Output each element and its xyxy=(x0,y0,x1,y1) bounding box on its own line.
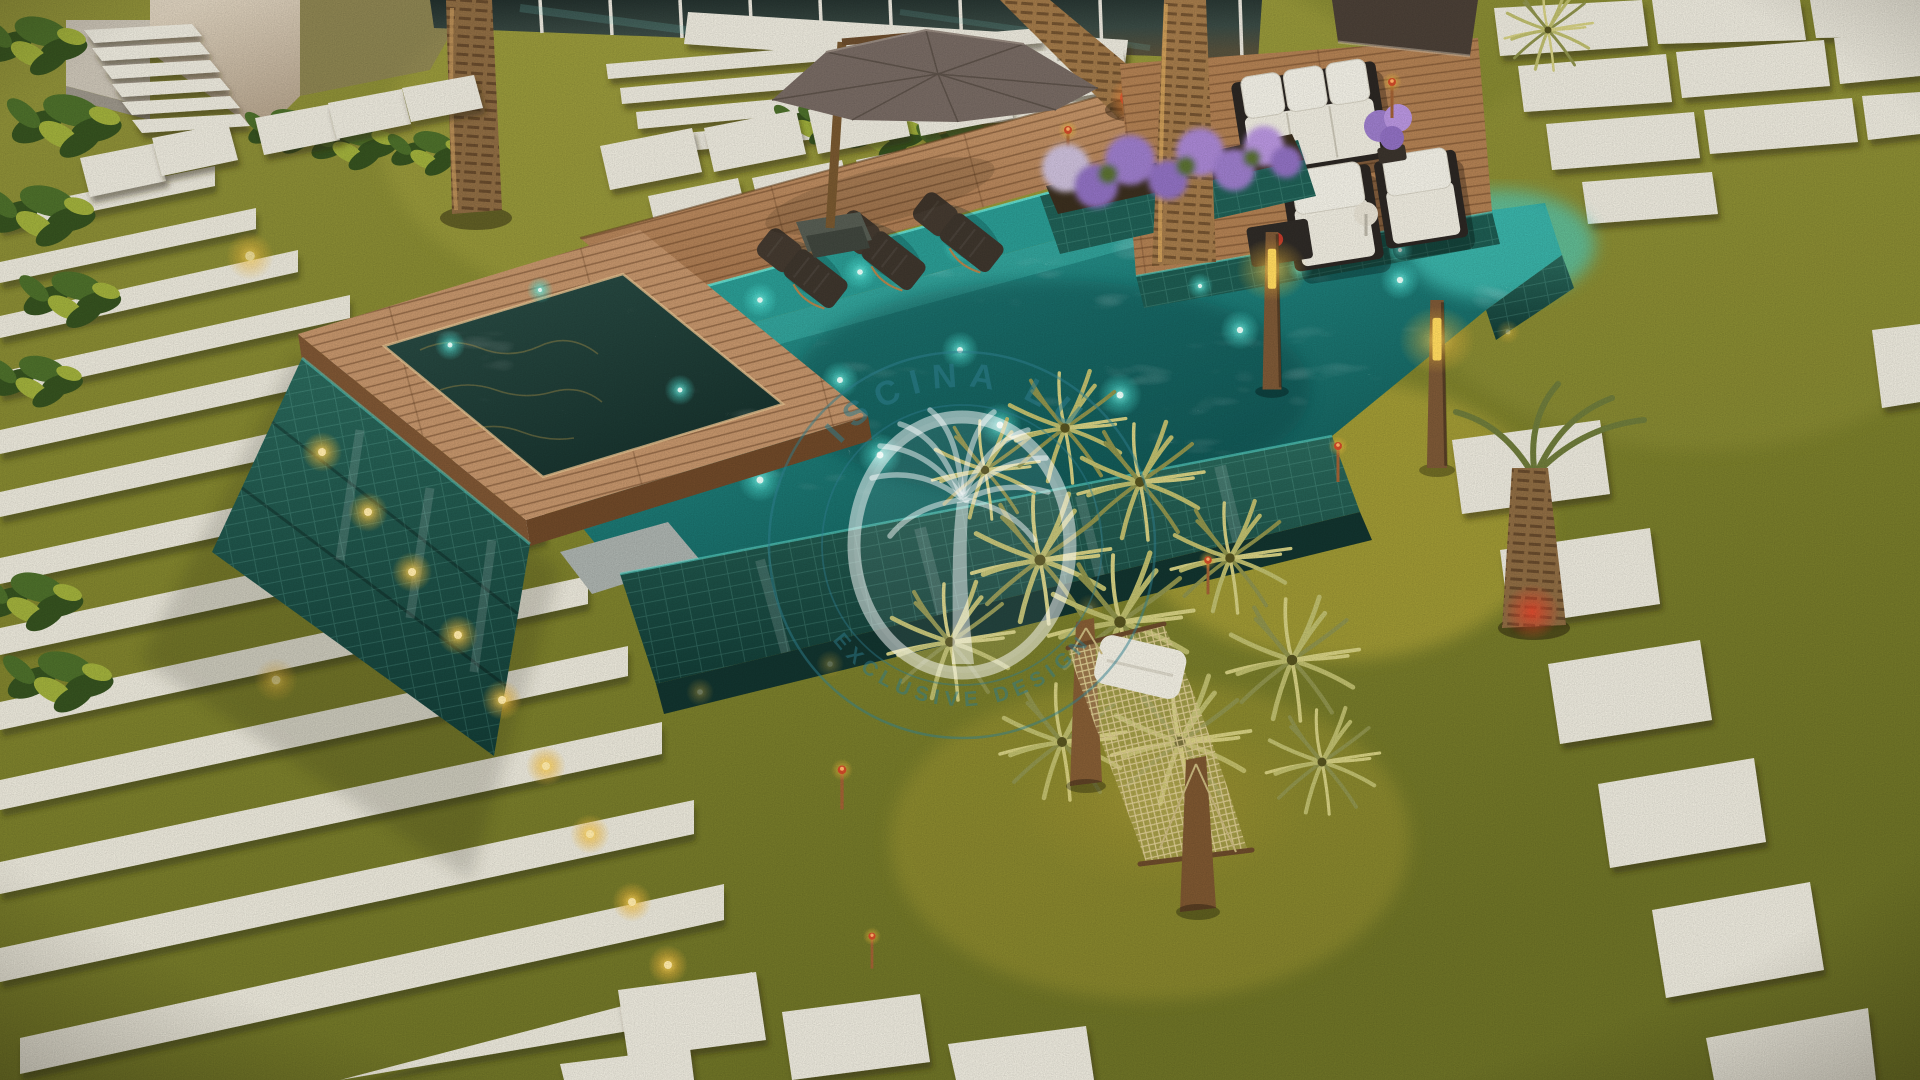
scene-canvas: PISCINA LUX EXCLUSIVE DESIGN xyxy=(0,0,1920,1080)
backyard-render: PISCINA LUX EXCLUSIVE DESIGN xyxy=(0,0,1920,1080)
